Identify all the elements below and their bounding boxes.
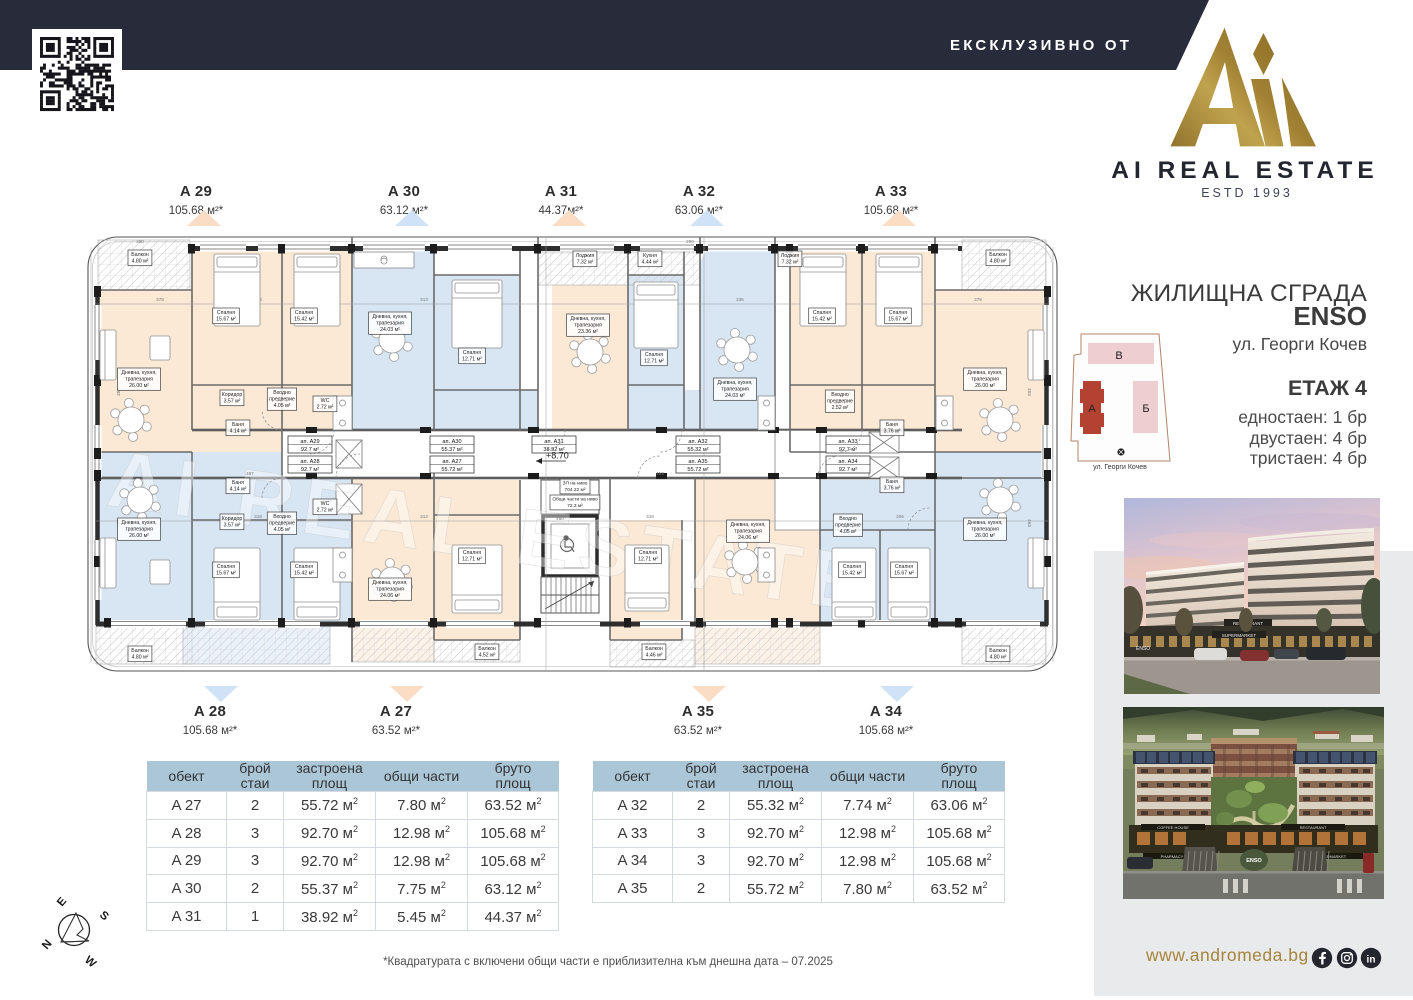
svg-text:306: 306 xyxy=(896,514,904,519)
svg-text:378: 378 xyxy=(156,297,164,302)
svg-text:Спалня: Спалня xyxy=(217,564,235,570)
svg-text:E: E xyxy=(55,895,69,909)
svg-text:предверие: предверие xyxy=(269,397,295,403)
svg-text:S: S xyxy=(97,909,111,923)
svg-text:Балкон: Балкон xyxy=(989,252,1007,258)
svg-text:ENSO: ENSO xyxy=(1136,646,1150,652)
svg-text:15.42 м²: 15.42 м² xyxy=(294,571,314,577)
svg-text:463: 463 xyxy=(1027,388,1032,396)
svg-text:RESTAURANT: RESTAURANT xyxy=(1300,825,1327,830)
svg-text:12.71 м²: 12.71 м² xyxy=(638,557,658,563)
svg-text:Спалня: Спалня xyxy=(843,564,861,570)
svg-text:15.67 м²: 15.67 м² xyxy=(894,571,914,577)
svg-text:463: 463 xyxy=(1027,519,1032,527)
svg-text:313: 313 xyxy=(420,297,428,302)
svg-text:+8.70: +8.70 xyxy=(546,451,569,461)
svg-text:SUPERMARKET: SUPERMARKET xyxy=(1222,633,1257,638)
svg-text:Входно: Входно xyxy=(273,514,291,520)
svg-text:26.00 м²: 26.00 м² xyxy=(129,383,149,389)
svg-text:Входно: Входно xyxy=(831,392,849,398)
svg-text:4.05 м²: 4.05 м² xyxy=(274,403,291,409)
svg-text:24.06 м²: 24.06 м² xyxy=(380,593,400,599)
svg-text:Входно: Входно xyxy=(839,516,857,522)
svg-text:Спалня: Спалня xyxy=(217,310,235,316)
svg-text:ул. Георги Кочев: ул. Георги Кочев xyxy=(1093,464,1147,471)
svg-text:3.57 м²: 3.57 м² xyxy=(224,523,241,529)
svg-text:55.72 м²: 55.72 м² xyxy=(441,467,462,473)
svg-text:4.44 м²: 4.44 м² xyxy=(642,260,659,266)
svg-text:4.80 м²: 4.80 м² xyxy=(990,655,1007,661)
svg-text:in: in xyxy=(1367,955,1376,966)
svg-text:Лоджия: Лоджия xyxy=(576,253,595,259)
svg-text:24.06 м²: 24.06 м² xyxy=(738,535,758,541)
svg-text:2.72 м²: 2.72 м² xyxy=(317,508,334,514)
svg-text:3.57 м²: 3.57 м² xyxy=(224,399,241,405)
svg-text:704.22 м²: 704.22 м² xyxy=(565,487,586,493)
svg-text:ап. А34: ап. А34 xyxy=(838,459,857,465)
svg-text:15.67 м²: 15.67 м² xyxy=(216,571,236,577)
svg-text:55.37 м²: 55.37 м² xyxy=(441,447,462,453)
svg-text:24.03 м²: 24.03 м² xyxy=(380,327,400,333)
svg-text:ап. А32: ап. А32 xyxy=(688,439,707,445)
svg-text:ENSO: ENSO xyxy=(1246,858,1262,864)
svg-text:трапезария: трапезария xyxy=(125,377,153,383)
svg-text:трапезария: трапезария xyxy=(734,529,762,535)
svg-text:Дневна, кухня,: Дневна, кухня, xyxy=(121,520,156,526)
svg-text:Спалня: Спалня xyxy=(895,564,913,570)
svg-text:Спалня: Спалня xyxy=(295,310,313,316)
svg-text:55.72 м²: 55.72 м² xyxy=(687,467,708,473)
svg-text:Спалня: Спалня xyxy=(813,310,831,316)
svg-text:15.67 м²: 15.67 м² xyxy=(216,317,236,323)
svg-text:W: W xyxy=(82,954,98,970)
svg-text:Дневна, кухня,: Дневна, кухня, xyxy=(717,380,752,386)
svg-text:4.80 м²: 4.80 м² xyxy=(990,259,1007,265)
svg-text:трапезария: трапезария xyxy=(376,587,404,593)
svg-text:ап. А27: ап. А27 xyxy=(442,459,461,465)
svg-text:92.7 м²: 92.7 м² xyxy=(301,467,319,473)
svg-text:Дневна, кухня,: Дневна, кухня, xyxy=(570,316,605,322)
svg-text:Дневна, кухня,: Дневна, кухня, xyxy=(121,370,156,376)
svg-text:Лоджия: Лоджия xyxy=(781,253,800,259)
svg-text:12.71 м²: 12.71 м² xyxy=(644,359,664,365)
svg-text:26.00 м²: 26.00 м² xyxy=(975,533,995,539)
svg-text:318: 318 xyxy=(254,514,262,519)
svg-text:трапезария: трапезария xyxy=(721,387,749,393)
svg-text:4.52 м²: 4.52 м² xyxy=(479,653,496,659)
svg-text:318: 318 xyxy=(646,514,654,519)
svg-text:460: 460 xyxy=(556,516,564,521)
svg-text:55.32 м²: 55.32 м² xyxy=(687,447,708,453)
svg-text:390: 390 xyxy=(136,239,144,244)
svg-text:COFFEE HOUSE: COFFEE HOUSE xyxy=(1157,825,1189,830)
svg-text:ап. А35: ап. А35 xyxy=(688,459,707,465)
svg-text:4.80 м²: 4.80 м² xyxy=(132,259,149,265)
svg-text:N: N xyxy=(40,938,55,952)
svg-text:Балкон: Балкон xyxy=(989,648,1007,654)
svg-text:Общи части на ниво: Общи части на ниво xyxy=(552,497,598,503)
svg-text:Спалня: Спалня xyxy=(463,550,481,556)
svg-text:497: 497 xyxy=(246,471,254,476)
svg-text:предверие: предверие xyxy=(835,523,861,529)
svg-text:26.00 м²: 26.00 м² xyxy=(975,383,995,389)
svg-text:Дневна, кухня,: Дневна, кухня, xyxy=(730,522,765,528)
svg-text:Баня: Баня xyxy=(886,422,898,428)
svg-text:4.05 м²: 4.05 м² xyxy=(274,527,291,533)
svg-text:Спалня: Спалня xyxy=(889,310,907,316)
svg-text:трапезария: трапезария xyxy=(376,321,404,327)
svg-text:Дневна, кухня,: Дневна, кухня, xyxy=(967,520,1002,526)
svg-text:4.80 м²: 4.80 м² xyxy=(132,655,149,661)
svg-text:26.00 м²: 26.00 м² xyxy=(129,533,149,539)
svg-text:15.42 м²: 15.42 м² xyxy=(294,317,314,323)
svg-text:Коридор: Коридор xyxy=(222,516,243,522)
svg-text:предверие: предверие xyxy=(827,399,853,405)
svg-text:335: 335 xyxy=(736,297,744,302)
svg-text:Спалня: Спалня xyxy=(639,550,657,556)
svg-text:трапезария: трапезария xyxy=(574,323,602,329)
svg-text:12.71 м²: 12.71 м² xyxy=(462,557,482,563)
svg-text:ап. А31: ап. А31 xyxy=(544,439,563,445)
svg-text:4.46 м²: 4.46 м² xyxy=(646,653,663,659)
svg-text:4.14 м²: 4.14 м² xyxy=(230,429,247,435)
svg-text:WC: WC xyxy=(321,398,330,404)
svg-text:Спалня: Спалня xyxy=(463,350,481,356)
svg-text:92.7 м²: 92.7 м² xyxy=(839,467,857,473)
svg-text:Дневна, кухня,: Дневна, кухня, xyxy=(967,370,1002,376)
svg-text:15.42 м²: 15.42 м² xyxy=(812,317,832,323)
svg-text:Балкон: Балкон xyxy=(645,646,663,652)
svg-text:ап. А30: ап. А30 xyxy=(442,439,461,445)
svg-text:Балкон: Балкон xyxy=(131,252,149,258)
svg-text:23.36 м²: 23.36 м² xyxy=(578,329,598,335)
svg-text:В: В xyxy=(1115,350,1122,362)
svg-text:92.7 м²: 92.7 м² xyxy=(839,447,857,453)
svg-text:7.32 м²: 7.32 м² xyxy=(577,260,594,266)
svg-text:4.05 м²: 4.05 м² xyxy=(840,529,857,535)
svg-text:Баня: Баня xyxy=(886,479,898,485)
svg-text:Дневна, кухня,: Дневна, кухня, xyxy=(372,580,407,586)
svg-text:15.67 м²: 15.67 м² xyxy=(888,317,908,323)
svg-text:PHARMACY: PHARMACY xyxy=(1161,854,1184,859)
svg-text:290: 290 xyxy=(686,239,694,244)
svg-text:4.14 м²: 4.14 м² xyxy=(230,487,247,493)
svg-text:15.42 м²: 15.42 м² xyxy=(842,571,862,577)
svg-text:313: 313 xyxy=(420,514,428,519)
svg-text:трапезария: трапезария xyxy=(971,377,999,383)
svg-text:24.03 м²: 24.03 м² xyxy=(725,393,745,399)
svg-text:трапезария: трапезария xyxy=(971,527,999,533)
svg-text:3.76 м²: 3.76 м² xyxy=(884,486,901,492)
svg-text:12.71 м²: 12.71 м² xyxy=(462,357,482,363)
svg-text:трапезария: трапезария xyxy=(125,527,153,533)
svg-text:7.32 м²: 7.32 м² xyxy=(782,260,799,266)
svg-text:378: 378 xyxy=(974,297,982,302)
svg-text:453: 453 xyxy=(656,471,664,476)
svg-text:ЗП на ниво: ЗП на ниво xyxy=(563,481,588,487)
svg-text:Б: Б xyxy=(1142,403,1149,415)
svg-text:Балкон: Балкон xyxy=(131,648,149,654)
svg-text:Баня: Баня xyxy=(232,422,244,428)
svg-text:WC: WC xyxy=(321,501,330,507)
svg-text:3.76 м²: 3.76 м² xyxy=(884,429,901,435)
svg-text:Спалня: Спалня xyxy=(645,352,663,358)
svg-text:Балкон: Балкон xyxy=(478,646,496,652)
svg-text:Коридор: Коридор xyxy=(222,392,243,398)
svg-text:А: А xyxy=(1088,403,1096,415)
svg-text:2.72 м²: 2.72 м² xyxy=(317,405,334,411)
svg-text:Баня: Баня xyxy=(232,480,244,486)
svg-text:ап. А29: ап. А29 xyxy=(300,439,319,445)
svg-text:72.3 м²: 72.3 м² xyxy=(567,503,583,509)
svg-text:Входно: Входно xyxy=(273,390,291,396)
svg-text:ап. А28: ап. А28 xyxy=(300,459,319,465)
svg-text:Дневна, кухня,: Дневна, кухня, xyxy=(372,314,407,320)
svg-text:Кухня: Кухня xyxy=(643,253,657,259)
svg-text:предверие: предверие xyxy=(269,521,295,527)
svg-text:ап. А33: ап. А33 xyxy=(838,439,857,445)
svg-text:Спалня: Спалня xyxy=(295,564,313,570)
svg-text:2.52 м²: 2.52 м² xyxy=(832,405,849,411)
svg-text:92.7 м²: 92.7 м² xyxy=(301,447,319,453)
